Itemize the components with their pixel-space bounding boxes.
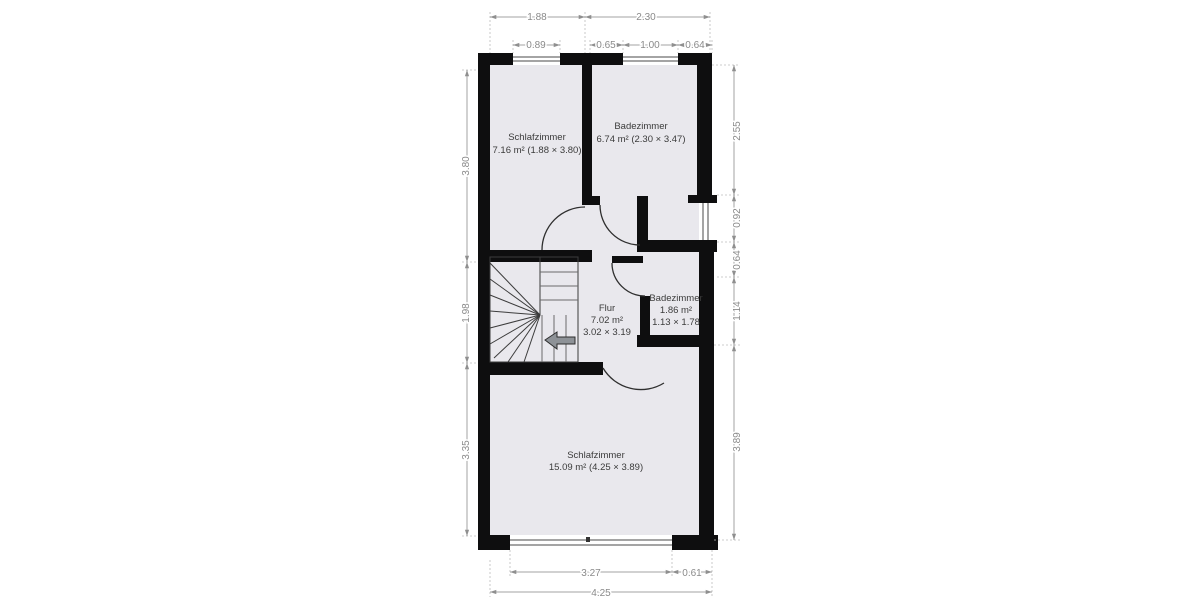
window-top-left: [513, 53, 560, 65]
svg-text:7.16 m² (1.88 × 3.80): 7.16 m² (1.88 × 3.80): [493, 145, 582, 156]
svg-text:Schlafzimmer: Schlafzimmer: [567, 450, 625, 461]
floor-plan-page: 1.88 2.30 0.89 0.65 1.00 0.64 3.80 1.98 …: [0, 0, 1200, 600]
svg-text:Badezimmer: Badezimmer: [614, 121, 667, 132]
dimension-label: 2.55: [732, 121, 743, 141]
window-top-right: [623, 53, 678, 65]
dimension-label: 0.92: [732, 208, 743, 228]
dimension-label: 1.88: [527, 12, 547, 23]
dimension-label: 3.89: [732, 432, 743, 452]
window-bottom: [510, 535, 672, 550]
dimension-label: 0.64: [732, 250, 743, 270]
dimension-label: 0.64: [685, 40, 705, 51]
floor-plan-svg: 1.88 2.30 0.89 0.65 1.00 0.64 3.80 1.98 …: [0, 0, 1200, 600]
svg-text:6.74 m² (2.30 × 3.47): 6.74 m² (2.30 × 3.47): [597, 134, 686, 145]
dimension-label: 3.27: [581, 568, 601, 579]
dimension-label: 2.30: [636, 12, 656, 23]
svg-text:15.09 m² (4.25 × 3.89): 15.09 m² (4.25 × 3.89): [549, 462, 643, 473]
dimension-label: 3.35: [461, 440, 472, 460]
dimension-label: 1.98: [461, 303, 472, 323]
dimension-label: 0.61: [682, 568, 702, 579]
window-right-nook: [699, 203, 712, 240]
dimension-label: 0.65: [596, 40, 616, 51]
svg-text:1.13 × 1.78: 1.13 × 1.78: [652, 317, 700, 328]
dimension-label: 1.14: [732, 301, 743, 321]
dimension-label: 1.00: [640, 40, 660, 51]
dimension-label: 3.80: [461, 156, 472, 176]
door-leaf-badezimmer-small: [612, 256, 643, 263]
svg-text:3.02 × 3.19: 3.02 × 3.19: [583, 327, 631, 338]
svg-text:1.86 m²: 1.86 m²: [660, 305, 692, 316]
svg-text:7.02 m²: 7.02 m²: [591, 315, 623, 326]
svg-text:Schlafzimmer: Schlafzimmer: [508, 132, 566, 143]
svg-text:Badezimmer: Badezimmer: [649, 293, 702, 304]
dimension-label: 0.89: [526, 40, 546, 51]
dimension-label: 4.25: [591, 588, 611, 599]
svg-text:Flur: Flur: [599, 303, 615, 314]
